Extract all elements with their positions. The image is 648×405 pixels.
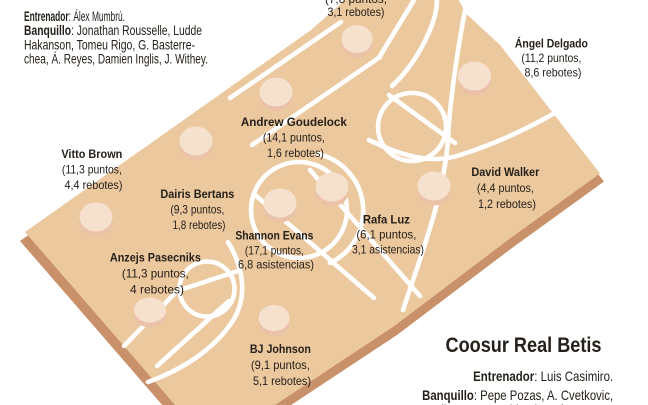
svg-text:Ángel Delgado (11,2 puntos, 8,: Ángel Delgado (11,2 puntos, 8,6 rebotes) xyxy=(515,37,591,80)
svg-text:Coosur Real Betis: Coosur Real Betis xyxy=(446,333,602,357)
svg-text:Entrenador: Álex Mumbrú. Banqu: Entrenador: Álex Mumbrú. Banquillo: Jona… xyxy=(24,9,208,67)
svg-text:Vitto Brown (11,3 puntos, 4,4: Vitto Brown (11,3 puntos, 4,4 rebotes) xyxy=(61,147,125,192)
svg-text:Shannon Evans (17,1 puntos, 6,: Shannon Evans (17,1 puntos, 6,8 asistenc… xyxy=(235,229,316,272)
svg-text:(7,8 puntos,3,1 rebotes): (7,8 puntos,3,1 rebotes) xyxy=(325,0,387,19)
svg-text:Entrenador: Luis Casimiro. Ban: Entrenador: Luis Casimiro. Banquillo: Pe… xyxy=(422,369,617,405)
svg-text:BJ Johnson (9,1 puntos, 5,1 re: BJ Johnson (9,1 puntos, 5,1 rebotes) xyxy=(250,342,314,388)
svg-text:David Walker (4,4 puntos, 1,2: David Walker (4,4 puntos, 1,2 rebotes) xyxy=(471,165,542,211)
